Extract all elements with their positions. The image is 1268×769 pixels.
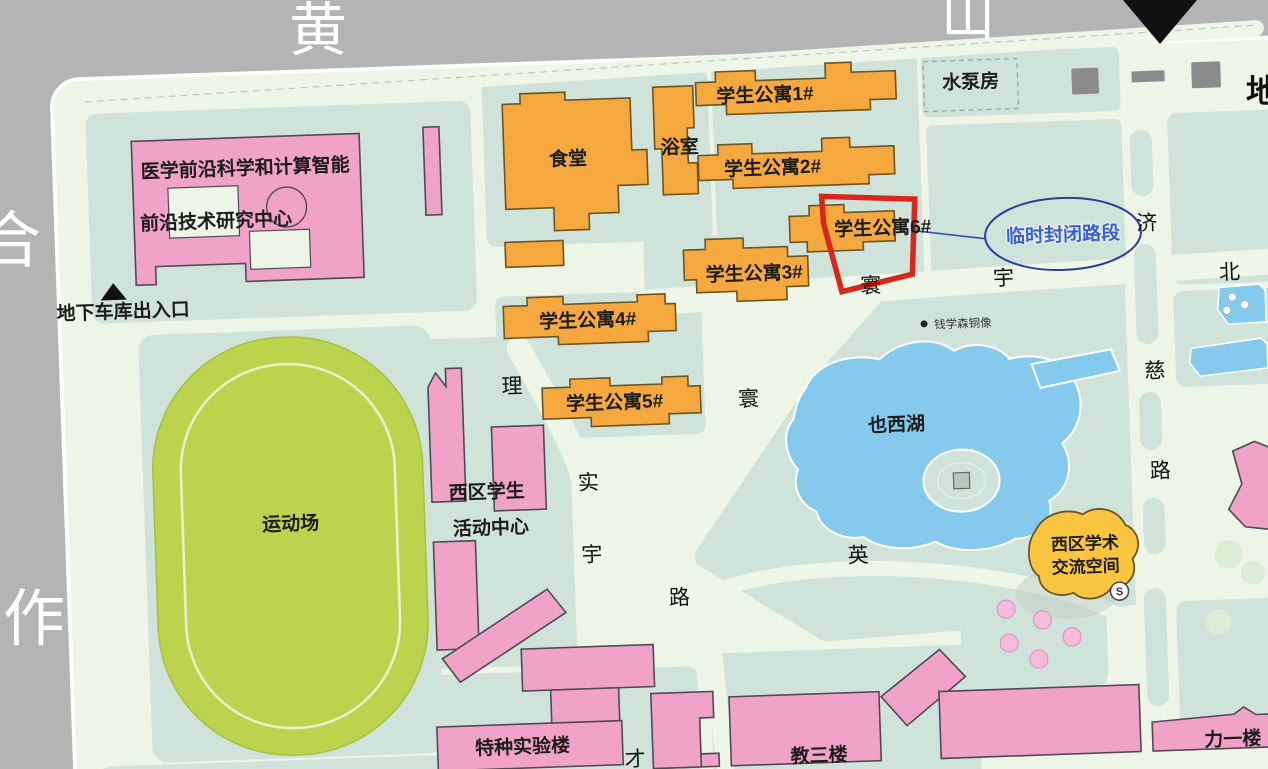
frame-char-huang: 黄 — [289, 0, 347, 63]
sports-track — [148, 333, 432, 760]
building-annex — [423, 127, 442, 216]
liyi-label: 力一楼 — [1204, 726, 1262, 751]
road-median — [1142, 498, 1166, 555]
road-median — [1129, 130, 1153, 197]
activity-label-line1: 西区学生 — [448, 479, 525, 505]
building-special-lab-north — [521, 644, 654, 691]
road-char-shi: 实 — [578, 471, 600, 495]
academic-label-line2: 交流空间 — [1051, 555, 1120, 577]
road-char-yu: 宇 — [993, 267, 1015, 291]
road-char-ji: 济 — [1136, 212, 1158, 236]
activity-label-line2: 活动中心 — [453, 515, 530, 541]
bathhouse-label: 浴室 — [660, 135, 699, 159]
frame-char-zuo: 作 — [3, 585, 65, 654]
teach3-label: 教三楼 — [790, 743, 848, 768]
frame-char-shan: 山 — [941, 0, 995, 46]
building-south-2 — [939, 685, 1141, 759]
road-char-li: 理 — [501, 375, 523, 399]
lotus-icon — [1228, 293, 1236, 301]
s-badge-label: S — [1116, 586, 1124, 598]
road-char-lu2: 路 — [669, 586, 691, 610]
gate-pillar-icon — [1071, 68, 1099, 95]
frame-char-he: 合 — [0, 207, 41, 276]
campus-map: 医学前沿科学和计算智能 前沿技术研究中心 食堂 浴室 学生公寓1# 学生公寓2#… — [0, 0, 1268, 769]
dorm4-label: 学生公寓4# — [539, 307, 637, 333]
sakura-tree-icon — [1030, 650, 1049, 669]
canteen-label: 食堂 — [549, 147, 588, 171]
road-char-lu: 路 — [1149, 459, 1171, 483]
road-char-huan: 寰 — [860, 274, 882, 298]
gate-bar-icon — [1131, 70, 1164, 82]
sports-field-group — [148, 333, 432, 760]
academic-label-line1: 西区学术 — [1051, 532, 1120, 554]
pump-label: 水泵房 — [942, 69, 1000, 94]
dorm2-label: 学生公寓2# — [724, 154, 822, 180]
dorm3-label: 学生公寓3# — [705, 260, 803, 286]
road-char-bei: 北 — [1219, 261, 1241, 285]
lotus-icon — [1240, 301, 1248, 309]
sakura-tree-icon — [1033, 611, 1052, 630]
road-median — [1133, 244, 1158, 345]
campus-map-canvas: 医学前沿科学和计算智能 前沿技术研究中心 食堂 浴室 学生公寓1# 学生公寓2#… — [0, 0, 1268, 769]
building-activity-center-south — [433, 541, 479, 650]
gate-pillar-icon — [1191, 61, 1221, 88]
dorm6-label: 学生公寓6# — [834, 215, 932, 241]
sports-label: 运动场 — [262, 512, 320, 536]
building-special-lab-stem — [551, 688, 620, 724]
lake-label: 也西湖 — [868, 412, 926, 437]
lab-label: 特种实验楼 — [475, 733, 571, 759]
lotus-icon — [1223, 306, 1231, 314]
road-median — [1143, 588, 1169, 707]
road-char-ying: 英 — [847, 544, 869, 568]
dorm5-label: 学生公寓5# — [566, 389, 664, 415]
sakura-tree-icon — [1063, 628, 1082, 647]
map-body: 医学前沿科学和计算智能 前沿技术研究中心 食堂 浴室 学生公寓1# 学生公寓2#… — [48, 17, 1268, 769]
building-canteen-annex — [505, 240, 564, 267]
road-char-yu2: 宇 — [581, 543, 603, 567]
sakura-tree-icon — [1000, 634, 1019, 653]
frame-char-di: 地 — [1246, 73, 1268, 109]
building-activity-center-tower — [427, 368, 466, 502]
road-char-huan-diag: 寰 — [738, 388, 760, 412]
road-char-cai: 才 — [624, 748, 646, 769]
island-pavilion-icon — [953, 472, 970, 489]
sakura-tree-icon — [997, 600, 1016, 619]
road-median — [1139, 392, 1163, 451]
research-courtyard — [249, 229, 310, 269]
road-char-ci: 慈 — [1144, 359, 1166, 383]
dorm1-label: 学生公寓1# — [716, 82, 814, 108]
